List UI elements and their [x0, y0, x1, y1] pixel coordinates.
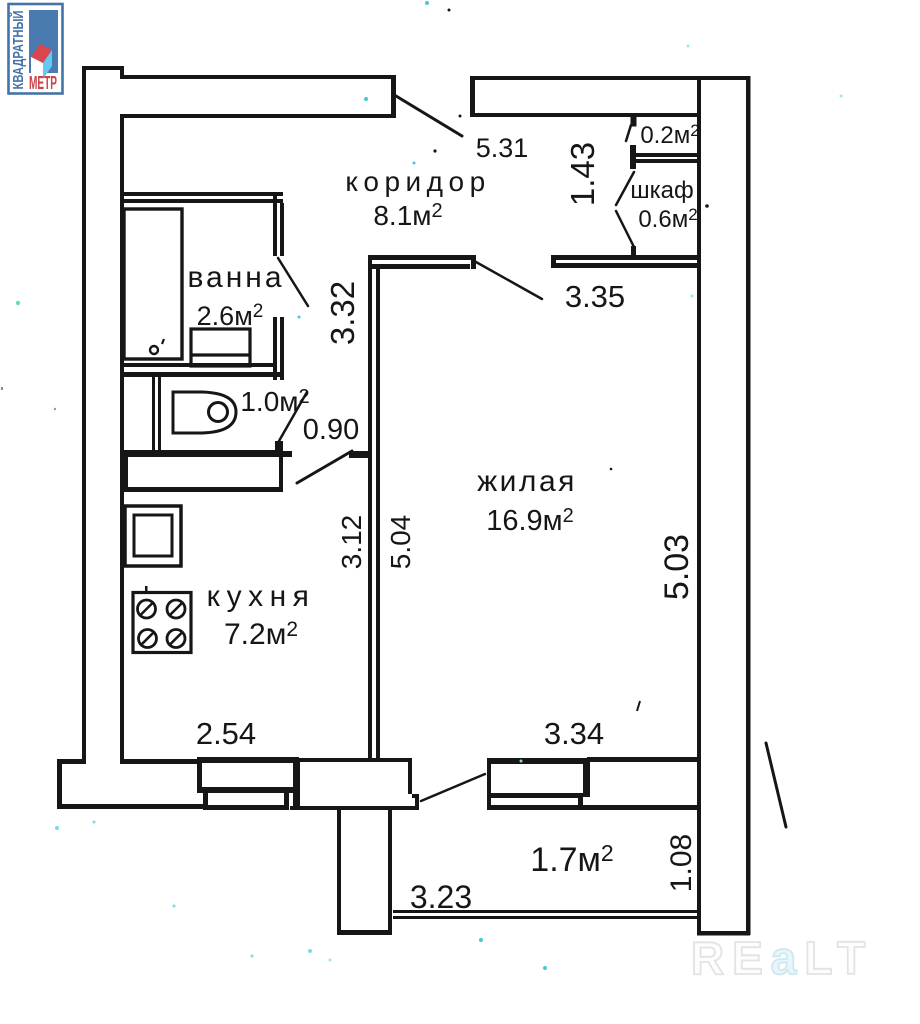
svg-text:3.12: 3.12 — [336, 515, 367, 570]
svg-text:3.34: 3.34 — [544, 716, 604, 751]
svg-text:0.90: 0.90 — [303, 414, 359, 446]
svg-text:5.03: 5.03 — [658, 534, 696, 600]
svg-text:1.08: 1.08 — [665, 834, 698, 892]
svg-text:ванна: ванна — [187, 261, 284, 294]
svg-text:МЕТР: МЕТР — [29, 73, 57, 93]
svg-text:5.04: 5.04 — [385, 515, 416, 570]
svg-text:3.32: 3.32 — [324, 281, 361, 345]
svg-text:жилая: жилая — [477, 465, 577, 498]
svg-text:REaLT: REaLT — [691, 932, 873, 984]
svg-text:16.9м2: 16.9м2 — [486, 505, 574, 537]
svg-text:КВАДРАТНЫЙ: КВАДРАТНЫЙ — [9, 11, 27, 90]
svg-text:кухня: кухня — [207, 580, 316, 613]
svg-text:3.35: 3.35 — [565, 279, 625, 314]
svg-text:коридор: коридор — [345, 166, 490, 197]
svg-text:3.23: 3.23 — [410, 879, 472, 915]
svg-text:5.31: 5.31 — [476, 133, 529, 163]
svg-text:шкаф: шкаф — [630, 177, 693, 204]
svg-text:2.54: 2.54 — [196, 716, 256, 751]
svg-text:1.43: 1.43 — [564, 142, 601, 206]
